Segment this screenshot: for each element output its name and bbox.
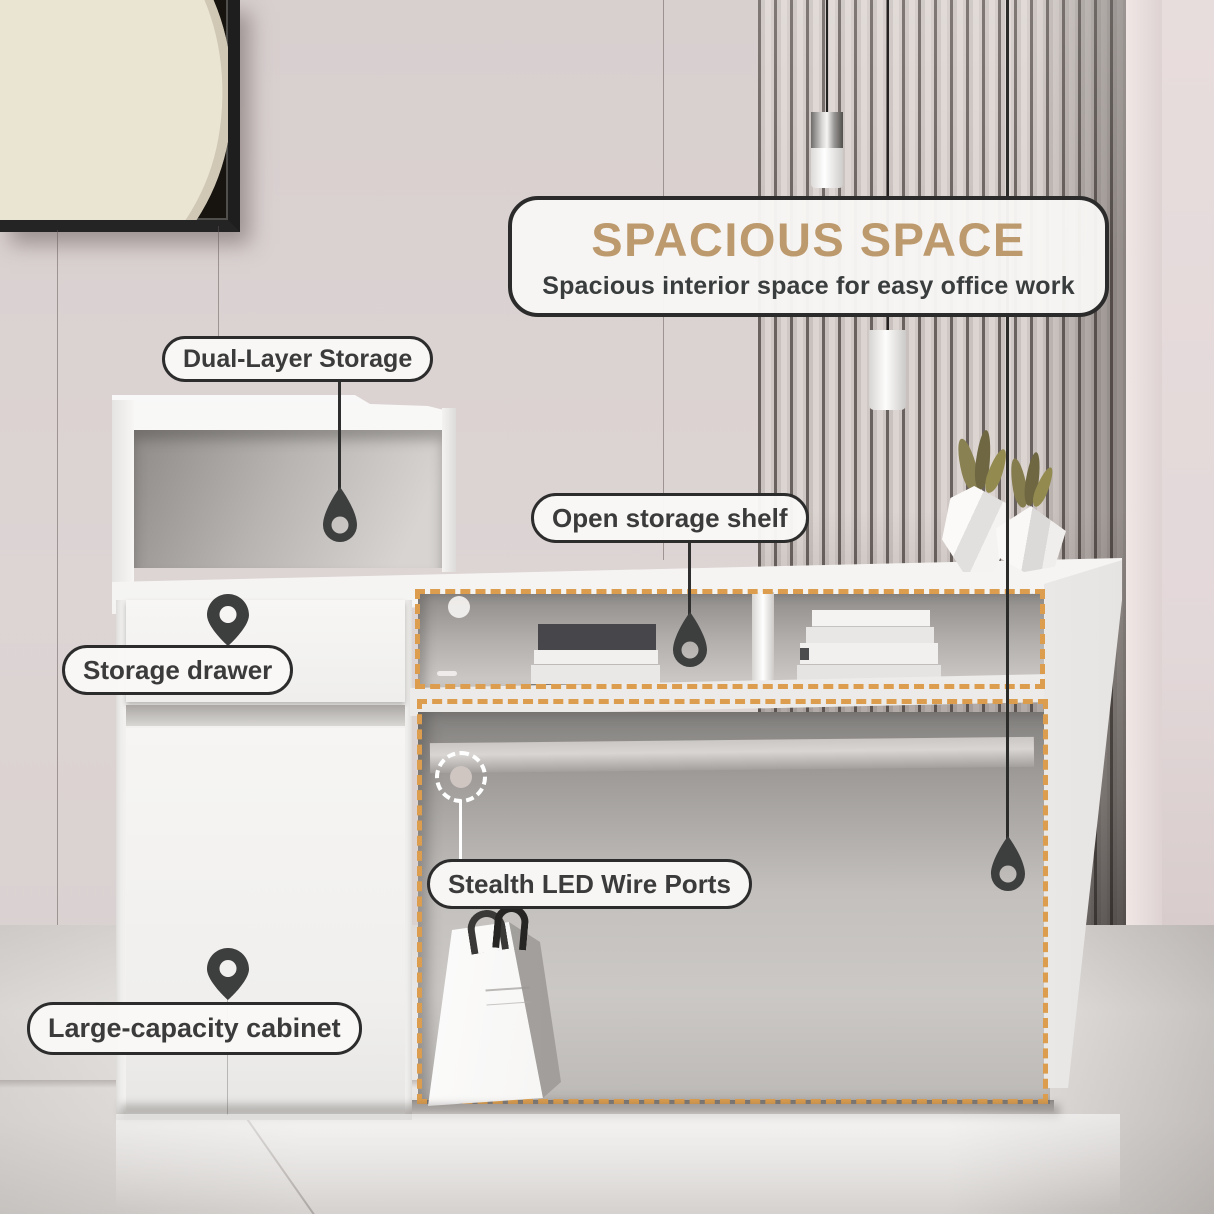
- callout-large-capacity-cabinet: Large-capacity cabinet: [27, 1002, 362, 1055]
- callout-storage-drawer: Storage drawer: [62, 645, 293, 695]
- open-shelf-teardrop-pin-icon: [668, 612, 712, 670]
- callout-open-storage-shelf: Open storage shelf: [531, 493, 809, 543]
- pendant-light-metal-cap: [811, 112, 843, 148]
- bag-logo: [485, 986, 530, 1005]
- callout-dual-layer-storage: Dual-Layer Storage: [162, 336, 433, 382]
- dashed-outline-open-shelf: [415, 589, 1045, 689]
- open-shelf-pointer-line: [688, 543, 691, 617]
- wall-art-abstract-shape: [0, 0, 240, 232]
- cabinet-location-pin-icon: [207, 948, 249, 1000]
- dual-layer-teardrop-pin-icon: [318, 487, 362, 545]
- product-scene: Dual-Layer Storage Open storage shelf St…: [0, 0, 1214, 1214]
- pendant-wire: [826, 0, 828, 114]
- floor-reflection: [116, 1114, 1120, 1209]
- hutch-left-panel: [112, 400, 134, 590]
- wall-right: [1162, 0, 1214, 928]
- led-pointer-line: [459, 800, 462, 862]
- banner-title: SPACIOUS SPACE: [591, 212, 1026, 267]
- headline-banner: SPACIOUS SPACE Spacious interior space f…: [508, 196, 1109, 317]
- wall-seam: [218, 226, 219, 338]
- hutch-open-compartment: [134, 430, 442, 568]
- wall-corner: [1126, 0, 1162, 928]
- bag-handle: [492, 904, 530, 951]
- drawer-handle-recess: [126, 705, 405, 726]
- callout-led-wire-ports: Stealth LED Wire Ports: [427, 859, 752, 909]
- led-port-dot: [450, 766, 472, 788]
- banner-subtitle: Spacious interior space for easy office …: [542, 272, 1075, 301]
- cabinet-door-panel: [126, 728, 405, 1114]
- hutch-right-panel: [442, 408, 456, 572]
- dual-layer-pointer-line: [338, 379, 341, 491]
- pointer-wire: [1006, 0, 1009, 843]
- pendant-light-2: [869, 330, 906, 410]
- storage-drawer-location-pin-icon: [207, 594, 249, 646]
- pendant-light-1: [811, 148, 843, 188]
- wall-art: [0, 0, 240, 232]
- desk-side-teardrop-pin-icon: [986, 836, 1030, 894]
